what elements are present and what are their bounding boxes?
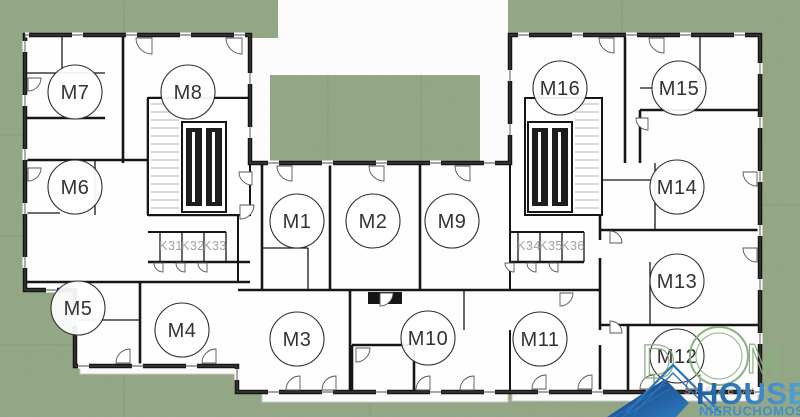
unit-label-m2: M2 [359, 211, 388, 233]
unit-label-m1: M1 [283, 211, 312, 233]
unit-circle-m16: M16 [533, 61, 587, 115]
storage-label-k36: K36 [561, 239, 585, 253]
unit-label-m13: M13 [657, 271, 697, 293]
unit-circle-m7: M7 [48, 65, 102, 119]
storage-label-k34: K34 [517, 239, 541, 253]
storage-label-k31: K31 [159, 239, 183, 253]
unit-circle-m9: M9 [425, 194, 479, 248]
floor-plan-image: M1 M2 M3 M4 M5 M6 M7 M8 M9 M10 M11 M12 M… [0, 0, 800, 417]
storage-label-k33: K33 [203, 239, 227, 253]
unit-label-m8: M8 [174, 82, 203, 104]
logo-dom-letter-m: M [746, 335, 781, 382]
unit-circle-m3: M3 [270, 312, 324, 366]
unit-label-m9: M9 [438, 211, 467, 233]
unit-circle-m11: M11 [513, 312, 567, 366]
unit-circle-m13: M13 [650, 254, 704, 308]
unit-circle-m8: M8 [161, 65, 215, 119]
storage-label-k32: K32 [181, 239, 205, 253]
floor-plan: M1 M2 M3 M4 M5 M6 M7 M8 M9 M10 M11 M12 M… [0, 0, 800, 417]
unit-label-m16: M16 [540, 78, 580, 100]
unit-label-m4: M4 [168, 320, 197, 342]
unit-label-m6: M6 [61, 177, 90, 199]
unit-label-m15: M15 [659, 78, 699, 100]
unit-circle-m2: M2 [346, 194, 400, 248]
unit-circle-m4: M4 [155, 303, 209, 357]
unit-label-m11: M11 [521, 329, 560, 351]
unit-circle-m14: M14 [650, 160, 704, 214]
logo-subtitle: NIERUCHOMOŚCI [699, 404, 800, 417]
unit-circle-m1: M1 [270, 194, 324, 248]
unit-label-m7: M7 [61, 82, 90, 104]
unit-circle-m6: M6 [48, 160, 102, 214]
unit-circle-m15: M15 [652, 61, 706, 115]
unit-circle-m10: M10 [401, 311, 455, 365]
unit-label-m10: M10 [408, 328, 448, 350]
stair-core-right [525, 98, 602, 215]
unit-label-m3: M3 [283, 329, 312, 351]
unit-label-m5: M5 [64, 298, 93, 320]
storage-label-k35: K35 [539, 239, 563, 253]
unit-label-m14: M14 [657, 177, 697, 199]
unit-circle-m5: M5 [51, 281, 105, 335]
